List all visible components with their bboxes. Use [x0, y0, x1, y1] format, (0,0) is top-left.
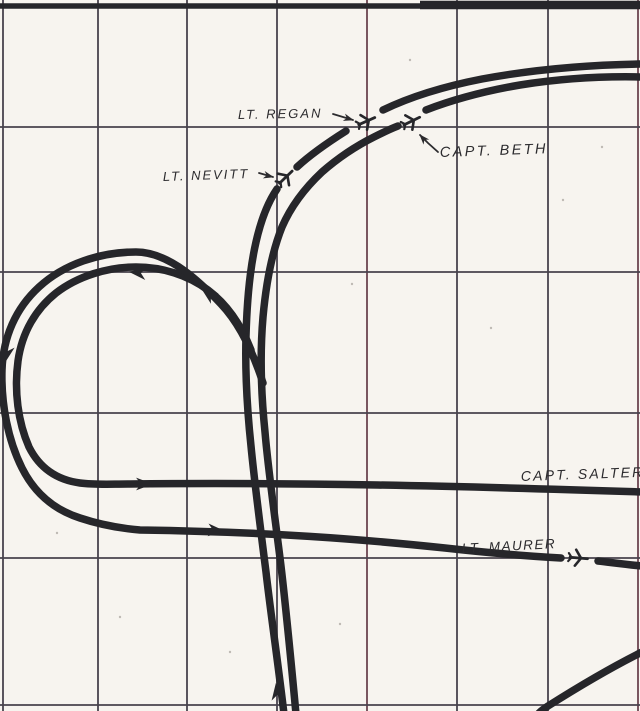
plane-fuselage [570, 557, 587, 559]
paper-speck [490, 327, 492, 329]
flight-path-map: LT. REGANCAPT. BETHLT. NEVITTCAPT. SALTE… [0, 0, 640, 711]
label-lt-regan: LT. REGAN [238, 106, 323, 122]
paper-speck [119, 616, 121, 618]
paper-speck [339, 623, 341, 625]
flight-path-map-canvas: LT. REGANCAPT. BETHLT. NEVITTCAPT. SALTE… [0, 0, 640, 711]
paper-speck [351, 283, 353, 285]
loop-track-lt-maurer [598, 561, 640, 566]
paper-speck [229, 651, 231, 653]
paper-speck [562, 199, 564, 201]
paper-speck [409, 59, 411, 61]
paper-speck [56, 532, 58, 534]
label-lt-nevitt: LT. NEVITT [163, 166, 250, 184]
paper-speck [601, 146, 603, 148]
